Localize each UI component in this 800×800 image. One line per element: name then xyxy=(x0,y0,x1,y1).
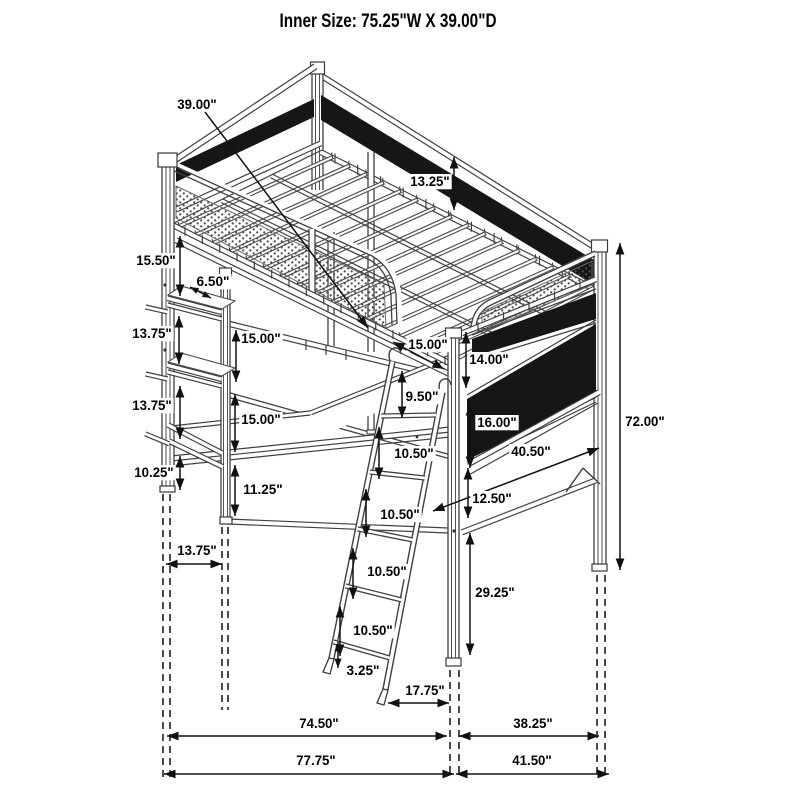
svg-text:13.25": 13.25" xyxy=(410,174,449,190)
svg-text:13.75": 13.75" xyxy=(132,326,171,342)
svg-text:3.25": 3.25" xyxy=(347,663,380,679)
svg-text:10.50": 10.50" xyxy=(353,623,392,639)
svg-text:17.75": 17.75" xyxy=(405,683,444,699)
svg-text:40.50": 40.50" xyxy=(511,444,550,460)
svg-text:15.00": 15.00" xyxy=(241,412,280,428)
svg-text:12.50": 12.50" xyxy=(472,491,511,507)
svg-text:10.50": 10.50" xyxy=(394,446,433,462)
svg-text:14.00": 14.00" xyxy=(469,352,508,368)
svg-text:77.75": 77.75" xyxy=(296,753,335,769)
svg-text:10.50": 10.50" xyxy=(380,507,419,523)
svg-text:Inner Size: 75.25"W X 39.00"D: Inner Size: 75.25"W X 39.00"D xyxy=(280,10,497,32)
svg-text:72.00": 72.00" xyxy=(625,414,664,430)
svg-text:16.00": 16.00" xyxy=(477,415,516,431)
svg-text:15.50": 15.50" xyxy=(136,253,175,269)
svg-text:15.00": 15.00" xyxy=(241,331,280,347)
svg-text:13.75": 13.75" xyxy=(177,543,216,559)
svg-text:29.25": 29.25" xyxy=(475,585,514,601)
svg-text:9.50": 9.50" xyxy=(406,389,439,405)
svg-text:10.25": 10.25" xyxy=(134,465,173,481)
svg-text:41.50": 41.50" xyxy=(512,753,551,769)
svg-text:39.00": 39.00" xyxy=(177,97,216,113)
svg-text:38.25": 38.25" xyxy=(513,716,552,732)
svg-text:6.50": 6.50" xyxy=(197,274,230,290)
svg-text:15.00": 15.00" xyxy=(408,337,447,353)
svg-text:11.25": 11.25" xyxy=(243,482,282,498)
svg-text:74.50": 74.50" xyxy=(299,716,338,732)
svg-text:13.75": 13.75" xyxy=(132,398,171,414)
svg-text:10.50": 10.50" xyxy=(367,564,406,580)
